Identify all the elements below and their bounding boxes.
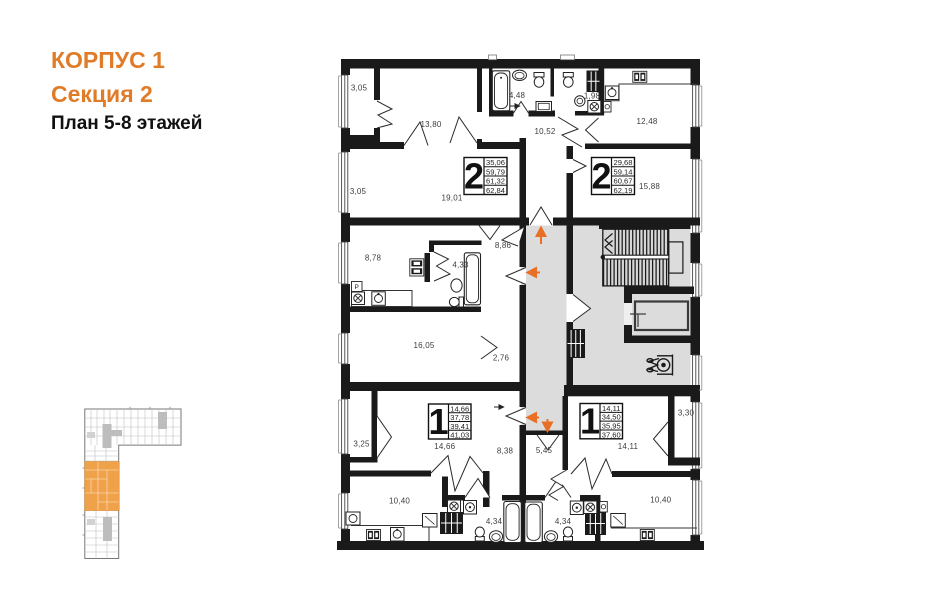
- svg-text:35,95: 35,95: [602, 422, 621, 431]
- svg-text:4,34: 4,34: [555, 517, 572, 526]
- svg-text:14,66: 14,66: [434, 442, 455, 451]
- svg-text:39,41: 39,41: [450, 422, 469, 431]
- svg-text:2,76: 2,76: [493, 354, 510, 363]
- svg-text:16,05: 16,05: [413, 341, 434, 350]
- svg-text:59,14: 59,14: [613, 167, 632, 176]
- svg-text:8,86: 8,86: [495, 241, 512, 250]
- svg-text:1,98: 1,98: [584, 92, 601, 101]
- svg-text:14,11: 14,11: [602, 404, 620, 413]
- svg-text:P: P: [355, 284, 359, 291]
- svg-text:29,68: 29,68: [613, 158, 632, 167]
- svg-text:1: 1: [580, 401, 600, 442]
- svg-text:4,48: 4,48: [509, 91, 526, 100]
- svg-text:41,03: 41,03: [450, 431, 469, 440]
- svg-text:10,40: 10,40: [650, 496, 671, 505]
- svg-text:1: 1: [428, 401, 448, 442]
- svg-text:12,48: 12,48: [636, 117, 657, 126]
- svg-text:60,67: 60,67: [613, 177, 632, 186]
- svg-text:2: 2: [591, 156, 611, 197]
- svg-text:3,05: 3,05: [350, 187, 367, 196]
- svg-text:34,50: 34,50: [602, 413, 621, 422]
- svg-text:4,34: 4,34: [486, 517, 503, 526]
- svg-text:37,60: 37,60: [602, 430, 621, 439]
- svg-text:10,40: 10,40: [389, 497, 410, 506]
- svg-text:8,38: 8,38: [497, 447, 514, 456]
- svg-text:19,01: 19,01: [441, 194, 462, 203]
- svg-text:10,52: 10,52: [534, 127, 555, 136]
- svg-text:15,88: 15,88: [639, 182, 660, 191]
- svg-text:61,32: 61,32: [486, 177, 505, 186]
- svg-text:13,80: 13,80: [420, 120, 441, 129]
- svg-text:4,33: 4,33: [452, 261, 469, 270]
- svg-text:3,05: 3,05: [351, 84, 368, 93]
- svg-text:59,79: 59,79: [486, 167, 505, 176]
- svg-text:2: 2: [464, 156, 484, 197]
- svg-text:14,11: 14,11: [618, 442, 639, 451]
- svg-text:3,25: 3,25: [353, 440, 370, 449]
- svg-text:3,30: 3,30: [678, 409, 695, 418]
- svg-text:37,78: 37,78: [450, 413, 469, 422]
- svg-text:62,19: 62,19: [613, 186, 632, 195]
- svg-text:35,06: 35,06: [486, 158, 505, 167]
- svg-text:5,45: 5,45: [536, 446, 553, 455]
- svg-text:62,84: 62,84: [486, 186, 505, 195]
- svg-text:14,66: 14,66: [450, 404, 469, 413]
- svg-text:8,78: 8,78: [365, 254, 382, 263]
